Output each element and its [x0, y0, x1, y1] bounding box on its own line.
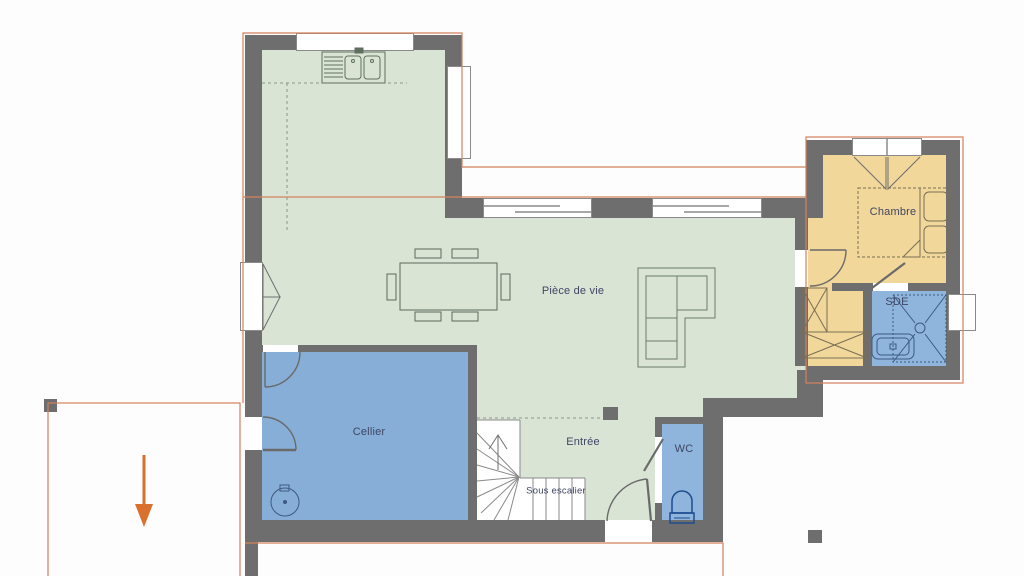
entrance-arrow-icon [135, 455, 153, 527]
front-door [607, 479, 651, 521]
curtain-icon [854, 157, 920, 189]
roof-outline [48, 33, 963, 576]
floor-plan: Pièce de vie Chambre SDE Cellier Entrée … [0, 0, 1024, 576]
wardrobe-icon [802, 288, 867, 358]
label-shower-room: SDE [885, 296, 908, 308]
door-pantry-left [263, 417, 296, 450]
casement-window-icon [263, 264, 280, 330]
bed-icon [858, 188, 952, 257]
plan-symbols-layer [0, 0, 1024, 576]
door-wc [644, 439, 663, 471]
label-wc: WC [675, 443, 694, 455]
door-bedroom [810, 250, 846, 286]
label-pantry: Cellier [353, 426, 386, 438]
label-under-stairs: Sous escalier [526, 486, 586, 497]
toilet-icon [670, 491, 694, 523]
dining-table-icon [387, 249, 510, 321]
sofa-icon [638, 268, 715, 367]
door-sde [872, 263, 905, 288]
door-pantry-top [265, 352, 300, 387]
staircase-icon [477, 420, 585, 520]
dashed-guides [262, 83, 603, 418]
label-living: Pièce de vie [542, 285, 604, 297]
label-entrance: Entrée [566, 436, 600, 448]
water-heater-icon [271, 485, 299, 516]
kitchen-sink-icon [322, 48, 385, 83]
sliding-window-lines [483, 138, 887, 212]
label-bedroom: Chambre [870, 206, 917, 218]
